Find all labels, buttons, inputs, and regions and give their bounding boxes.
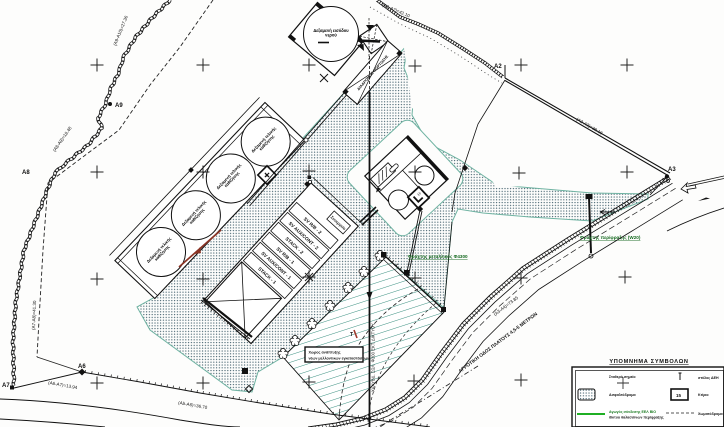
svg-text:Χωματόδρομα: Χωματόδρομα xyxy=(698,412,723,416)
svg-text:A7: A7 xyxy=(2,383,10,389)
svg-text:A8: A8 xyxy=(22,170,30,176)
svg-text:νέων μελλοντικών εγκαταστάσεων: νέων μελλοντικών εγκαταστάσεων xyxy=(309,357,370,361)
svg-text:Χώρος ανάπτυξης: Χώρος ανάπτυξης xyxy=(309,351,341,355)
svg-text:Αγωγός σύνδεσης ΕΕΛ ΒΙΟ: Αγωγός σύνδεσης ΕΕΛ ΒΙΟ xyxy=(609,410,656,414)
svg-text:A9: A9 xyxy=(115,103,123,109)
svg-text:δίκτυο θαλασσινών περίφραξης: δίκτυο θαλασσινών περίφραξης xyxy=(609,416,664,420)
svg-text:νερού: νερού xyxy=(325,33,337,38)
svg-text:15: 15 xyxy=(676,393,682,398)
svg-text:Κτίριο: Κτίριο xyxy=(698,393,709,397)
svg-text:Ασφαλτόδρομα: Ασφαλτόδρομα xyxy=(609,393,636,397)
svg-text:στύλος ΔΕΗ: στύλος ΔΕΗ xyxy=(698,376,719,380)
svg-text:A2: A2 xyxy=(494,64,502,70)
svg-text:T: T xyxy=(350,332,353,338)
svg-text:ΥΠΟΜΝΗΜΑ ΣΥΜΒΟΛΩΝ: ΥΠΟΜΝΗΜΑ ΣΥΜΒΟΛΩΝ xyxy=(609,359,688,365)
svg-text:A6: A6 xyxy=(78,364,86,370)
svg-text:ΧΑΛΥΒΔ. ΣΩΛ. Φ200 ΕΚΤ. ΔΙΚΤΥΟΥ: ΧΑΛΥΒΔ. ΣΩΛ. Φ200 ΕΚΤ. ΔΙΚΤΥΟΥ xyxy=(371,323,376,392)
svg-text:(A7-A8)=41.30: (A7-A8)=41.30 xyxy=(31,300,37,330)
svg-text:A3: A3 xyxy=(668,167,676,173)
